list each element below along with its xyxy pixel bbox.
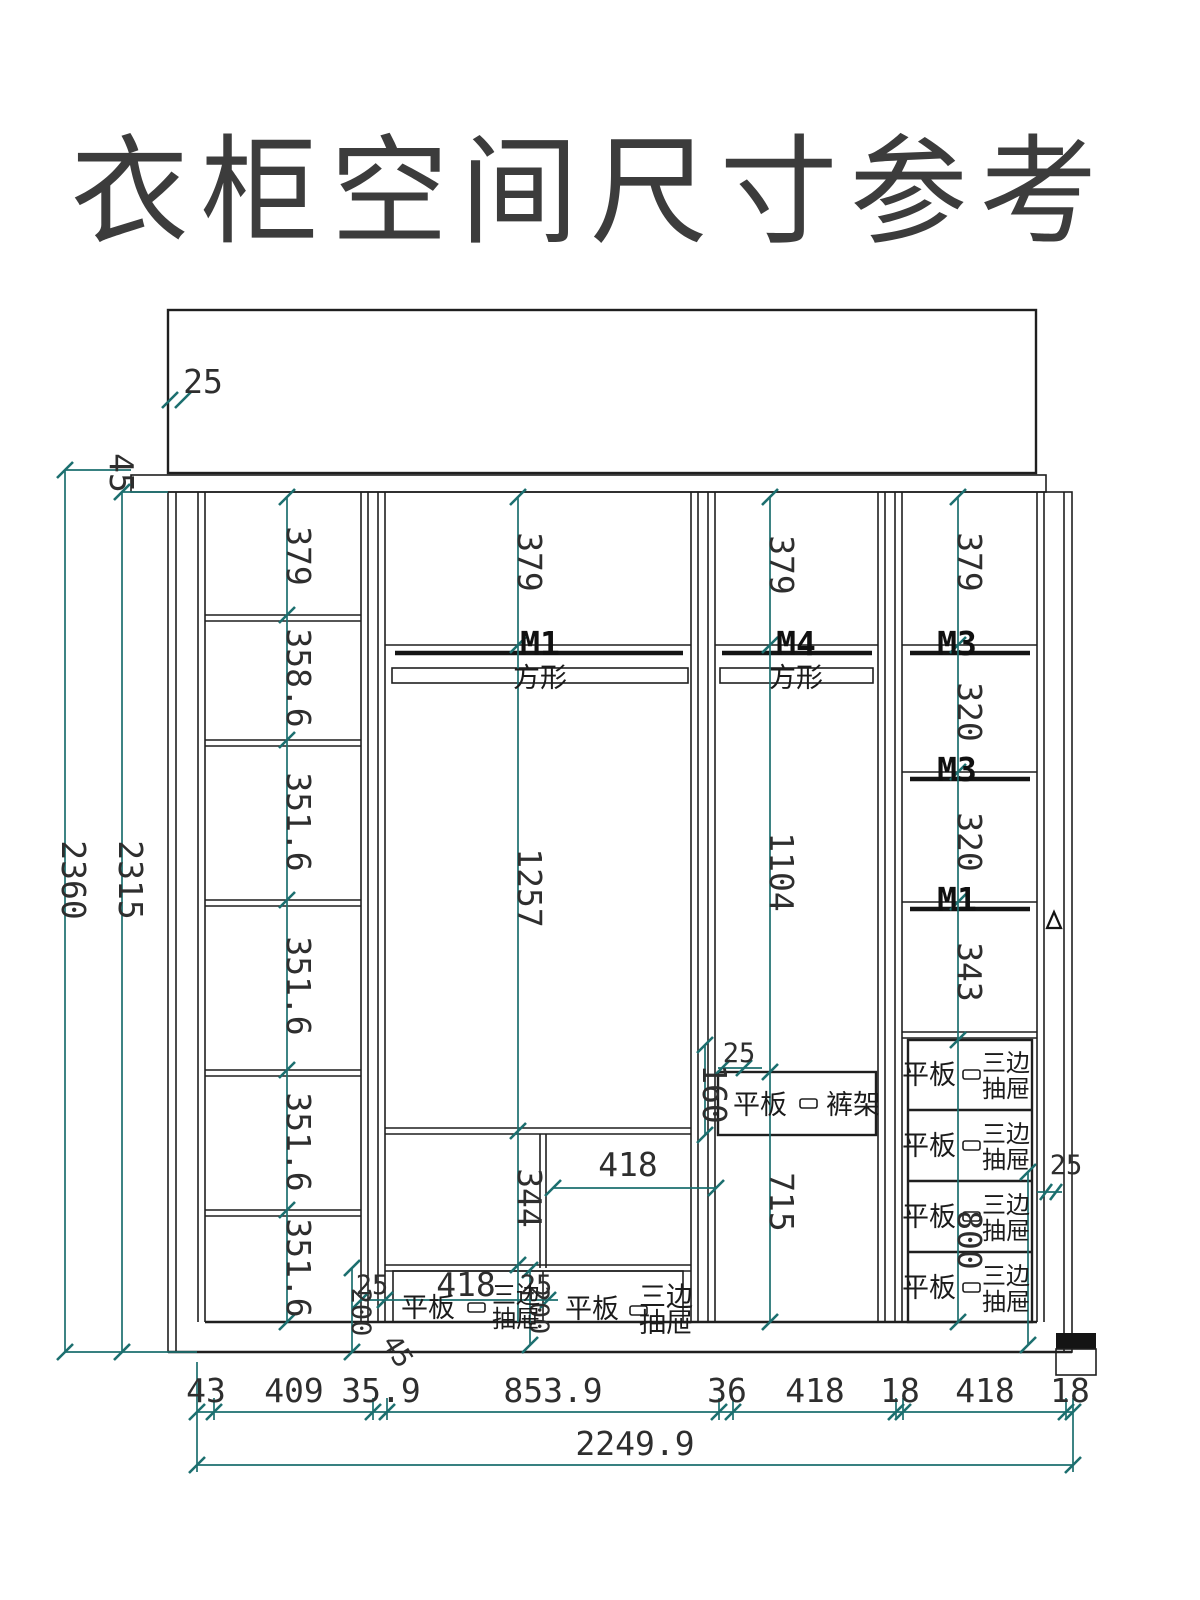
drawer-board-label: 平板 (565, 1294, 619, 1325)
drawer-type-label: 抽屉 (982, 1217, 1030, 1245)
dim-crown-offset: 45 (102, 453, 141, 493)
dim-col1-cell: 351.6 (279, 1218, 318, 1317)
drawer-board-label: 平板 (902, 1131, 956, 1162)
drawer-type-label: 抽屉 (639, 1308, 693, 1339)
drawer-board-label: 平板 (401, 1293, 455, 1324)
drawer-handle (468, 1303, 485, 1312)
dim-col4-gap: 25 (1050, 1150, 1083, 1181)
drawer-type-label: 抽屉 (982, 1075, 1030, 1103)
dim-col3-top: 379 (762, 535, 801, 595)
drawer-type-label: 三边 (982, 1049, 1030, 1077)
dim-col1-cell: 351.6 (279, 772, 318, 871)
rod-type-label-col2: 方形 (513, 663, 567, 694)
wardrobe-dimension-drawing: 衣柜空间尺寸参考 (0, 0, 1200, 1600)
dim-col4-cell3: 343 (950, 942, 989, 1002)
dim-col3-lower: 715 (762, 1172, 801, 1232)
dim-col4-cell2: 320 (950, 812, 989, 872)
dim-col1-cell: 358.6 (279, 628, 318, 727)
dim-bottom: 18 (1050, 1371, 1090, 1410)
drawer-handle (963, 1141, 980, 1150)
shelf-code-col4-mid: M3 (937, 750, 977, 789)
crown-board (131, 475, 1046, 492)
dim-bottom: 36 (707, 1371, 747, 1410)
dim-col3-rack-height: 160 (695, 1064, 734, 1124)
base-block (1056, 1333, 1096, 1375)
dim-col1-cell: 351.6 (279, 936, 318, 1035)
drawer-board-label: 平板 (902, 1273, 956, 1304)
drawer-handle (963, 1070, 980, 1079)
dim-col2-hang: 1257 (510, 848, 549, 927)
dim-bottom: 418 (955, 1371, 1015, 1410)
dim-col1-cell: 379 (279, 526, 318, 586)
drawer-handle (800, 1099, 817, 1108)
dim-bottom: 43 (186, 1371, 226, 1410)
drawer-board-label: 平板 (902, 1202, 956, 1233)
rack-board-label: 平板 (733, 1090, 787, 1121)
dim-base-height: 45 (375, 1329, 419, 1373)
dim-col3-hang: 1104 (762, 832, 801, 911)
cabinet-body (131, 310, 1072, 1352)
trouser-rack-label: 裤架 (826, 1090, 880, 1121)
top-cabinet-box (168, 310, 1036, 473)
dim-col1-cell: 351.6 (279, 1092, 318, 1191)
drawer-type-label: 抽屉 (982, 1146, 1030, 1174)
base-block-dark (1056, 1333, 1096, 1349)
dim-col4-top: 379 (950, 532, 989, 592)
dim-total-width: 2249.9 (575, 1424, 694, 1463)
dim-total-height: 2360 (54, 840, 93, 919)
rod-type-label-col3: 方形 (769, 663, 823, 694)
dim-col2-top: 379 (510, 532, 549, 592)
dim-col2-lower-right-width: 418 (598, 1145, 658, 1184)
triangle-marker-icon (1047, 912, 1061, 928)
dim-body-height: 2315 (111, 840, 150, 919)
dim-bottom: 418 (785, 1371, 845, 1410)
dim-bottom: 18 (880, 1371, 920, 1410)
drawing-canvas: 25 45 2360 2315 379 358.6 351.6 351.6 35… (0, 0, 1200, 1600)
dim-bottom: 35.9 (341, 1371, 420, 1410)
drawer-type-label: 三边 (982, 1120, 1030, 1148)
dim-col2-lower-left: 344 (510, 1168, 549, 1228)
shelf-code-col4-top: M3 (937, 624, 977, 663)
dim-col2-drawer-height: 200 (345, 1288, 376, 1337)
shelf-code-col3: M4 (776, 624, 816, 663)
shelf-code-col4-low: M1 (937, 880, 977, 919)
dim-bottom: 853.9 (503, 1371, 602, 1410)
drawer-handle (963, 1283, 980, 1292)
dim-top-thickness: 25 (183, 362, 223, 401)
dim-col4-cell1: 320 (950, 682, 989, 742)
dim-bottom: 409 (264, 1371, 324, 1410)
drawer-type-label: 三边 (982, 1191, 1030, 1219)
drawer-type-label: 抽屉 (982, 1288, 1030, 1316)
drawer-board-label: 平板 (902, 1060, 956, 1091)
shelf-code-col2: M1 (520, 624, 560, 663)
drawer-type-label: 抽屉 (492, 1305, 540, 1333)
drawer-type-label: 三边 (982, 1262, 1030, 1290)
